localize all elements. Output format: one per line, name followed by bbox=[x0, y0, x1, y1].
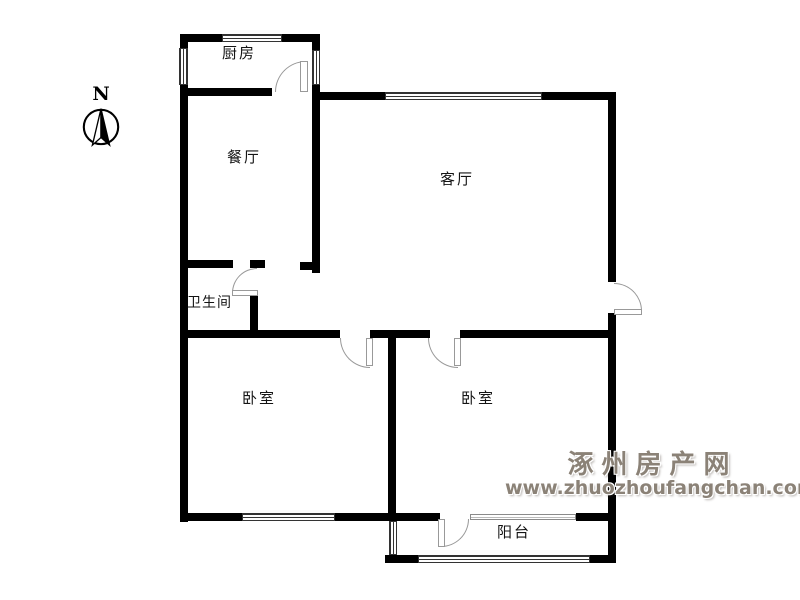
door-leaf bbox=[454, 338, 461, 366]
room-label-balcony: 阳台 bbox=[497, 525, 531, 540]
watermark-site-url: www.zhuozhoufangchan.com bbox=[505, 479, 800, 499]
door-swing-arc bbox=[441, 519, 469, 547]
door-leaf bbox=[438, 519, 445, 547]
wall-segment bbox=[180, 513, 242, 521]
wall-segment bbox=[312, 85, 320, 273]
room-label-bathroom: 卫生间 bbox=[187, 296, 232, 310]
window bbox=[470, 514, 576, 520]
wall-segment bbox=[180, 88, 272, 96]
wall-segment bbox=[180, 330, 340, 338]
wall-segment bbox=[300, 262, 312, 270]
wall-segment bbox=[370, 330, 430, 338]
wall-segment bbox=[542, 92, 616, 100]
watermark-site-name: 涿州房产网 bbox=[505, 452, 800, 479]
wall-segment bbox=[335, 513, 396, 521]
wall-segment bbox=[385, 555, 418, 563]
window bbox=[389, 521, 397, 555]
wall-segment bbox=[320, 92, 385, 100]
wall-segment bbox=[250, 260, 265, 268]
door-leaf bbox=[232, 290, 258, 296]
watermark: 涿州房产网 www.zhuozhoufangchan.com bbox=[505, 452, 800, 499]
wall-segment bbox=[180, 260, 233, 268]
door-swing-arc bbox=[614, 283, 642, 311]
window bbox=[385, 92, 542, 100]
wall-segment bbox=[312, 34, 320, 50]
window bbox=[222, 34, 282, 42]
wall-segment bbox=[396, 513, 440, 521]
wall-segment bbox=[576, 513, 616, 521]
door-leaf bbox=[614, 309, 642, 315]
north-compass: N bbox=[79, 85, 123, 149]
room-label-kitchen: 厨房 bbox=[222, 46, 256, 61]
floor-plan: 厨房 餐厅 客厅 卫生间 卧室 卧室 阳台 N 涿州房产网 www.zhuozh… bbox=[0, 0, 800, 600]
window bbox=[418, 555, 590, 563]
wall-segment bbox=[460, 330, 608, 338]
window bbox=[179, 48, 188, 85]
door-leaf bbox=[300, 61, 308, 92]
room-label-bedroom-left: 卧室 bbox=[242, 391, 276, 406]
door-leaf bbox=[366, 338, 373, 366]
window bbox=[312, 50, 320, 85]
wall-segment bbox=[388, 330, 396, 521]
wall-segment bbox=[608, 313, 616, 563]
wall-segment bbox=[590, 555, 616, 563]
room-label-bedroom-right: 卧室 bbox=[461, 391, 495, 406]
window bbox=[242, 513, 335, 521]
north-arrow-icon bbox=[80, 103, 122, 149]
north-label: N bbox=[79, 85, 123, 104]
wall-segment bbox=[608, 92, 616, 282]
room-label-living: 客厅 bbox=[440, 172, 474, 187]
room-label-dining: 餐厅 bbox=[227, 150, 261, 165]
wall-segment bbox=[180, 34, 188, 48]
